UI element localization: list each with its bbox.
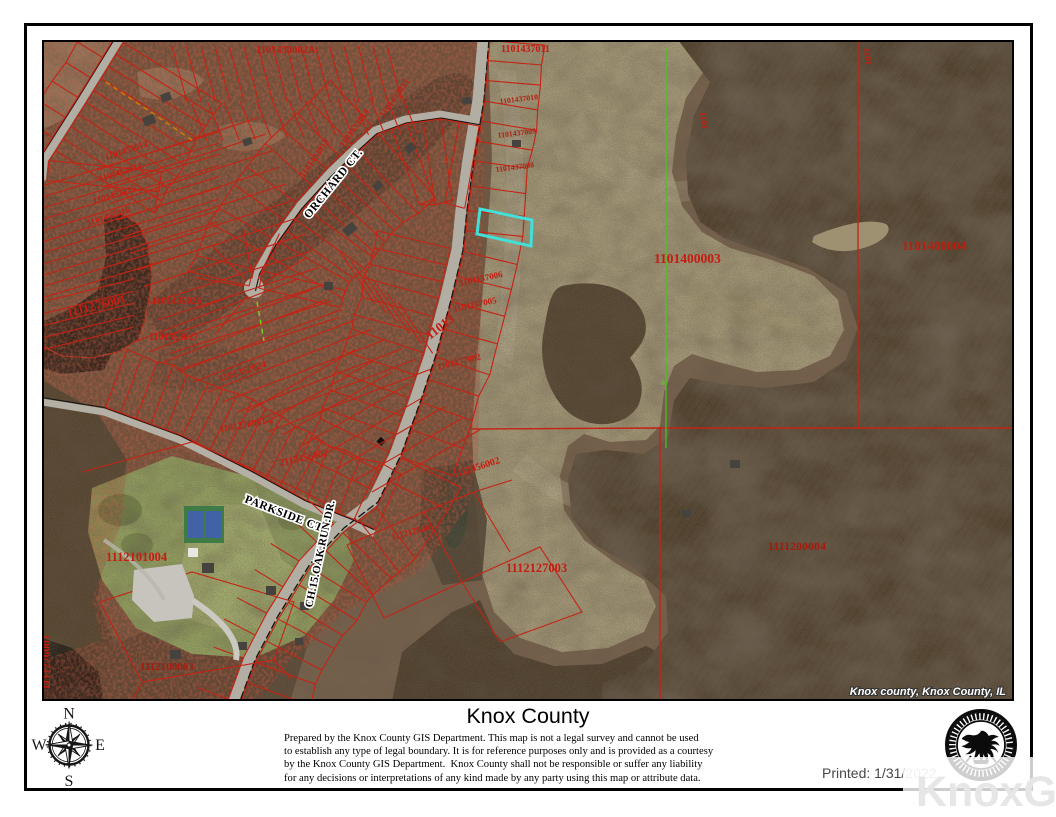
svg-text:1112100003: 1112100003	[140, 661, 194, 673]
svg-text:W: W	[31, 737, 47, 754]
svg-text:1111200004: 1111200004	[768, 539, 826, 553]
svg-text:1112101004: 1112101004	[106, 550, 168, 564]
svg-text:1101433002A: 1101433002A	[256, 45, 316, 56]
svg-text:N: N	[63, 706, 75, 723]
svg-text:1101400003: 1101400003	[654, 251, 721, 266]
svg-text:1101435026: 1101435026	[152, 296, 201, 307]
svg-text:1101: 1101	[862, 47, 874, 66]
svg-text:1112127003: 1112127003	[506, 561, 567, 575]
svg-text:S: S	[65, 773, 74, 790]
svg-text:E: E	[95, 737, 105, 754]
svg-text:1101: 1101	[698, 111, 710, 130]
svg-text:Knox county, Knox County, IL: Knox county, Knox County, IL	[850, 686, 1007, 698]
svg-text:1101400004: 1101400004	[902, 238, 967, 253]
svg-text:1101353027: 1101353027	[149, 332, 198, 343]
svg-text:1101437011: 1101437011	[501, 44, 550, 55]
